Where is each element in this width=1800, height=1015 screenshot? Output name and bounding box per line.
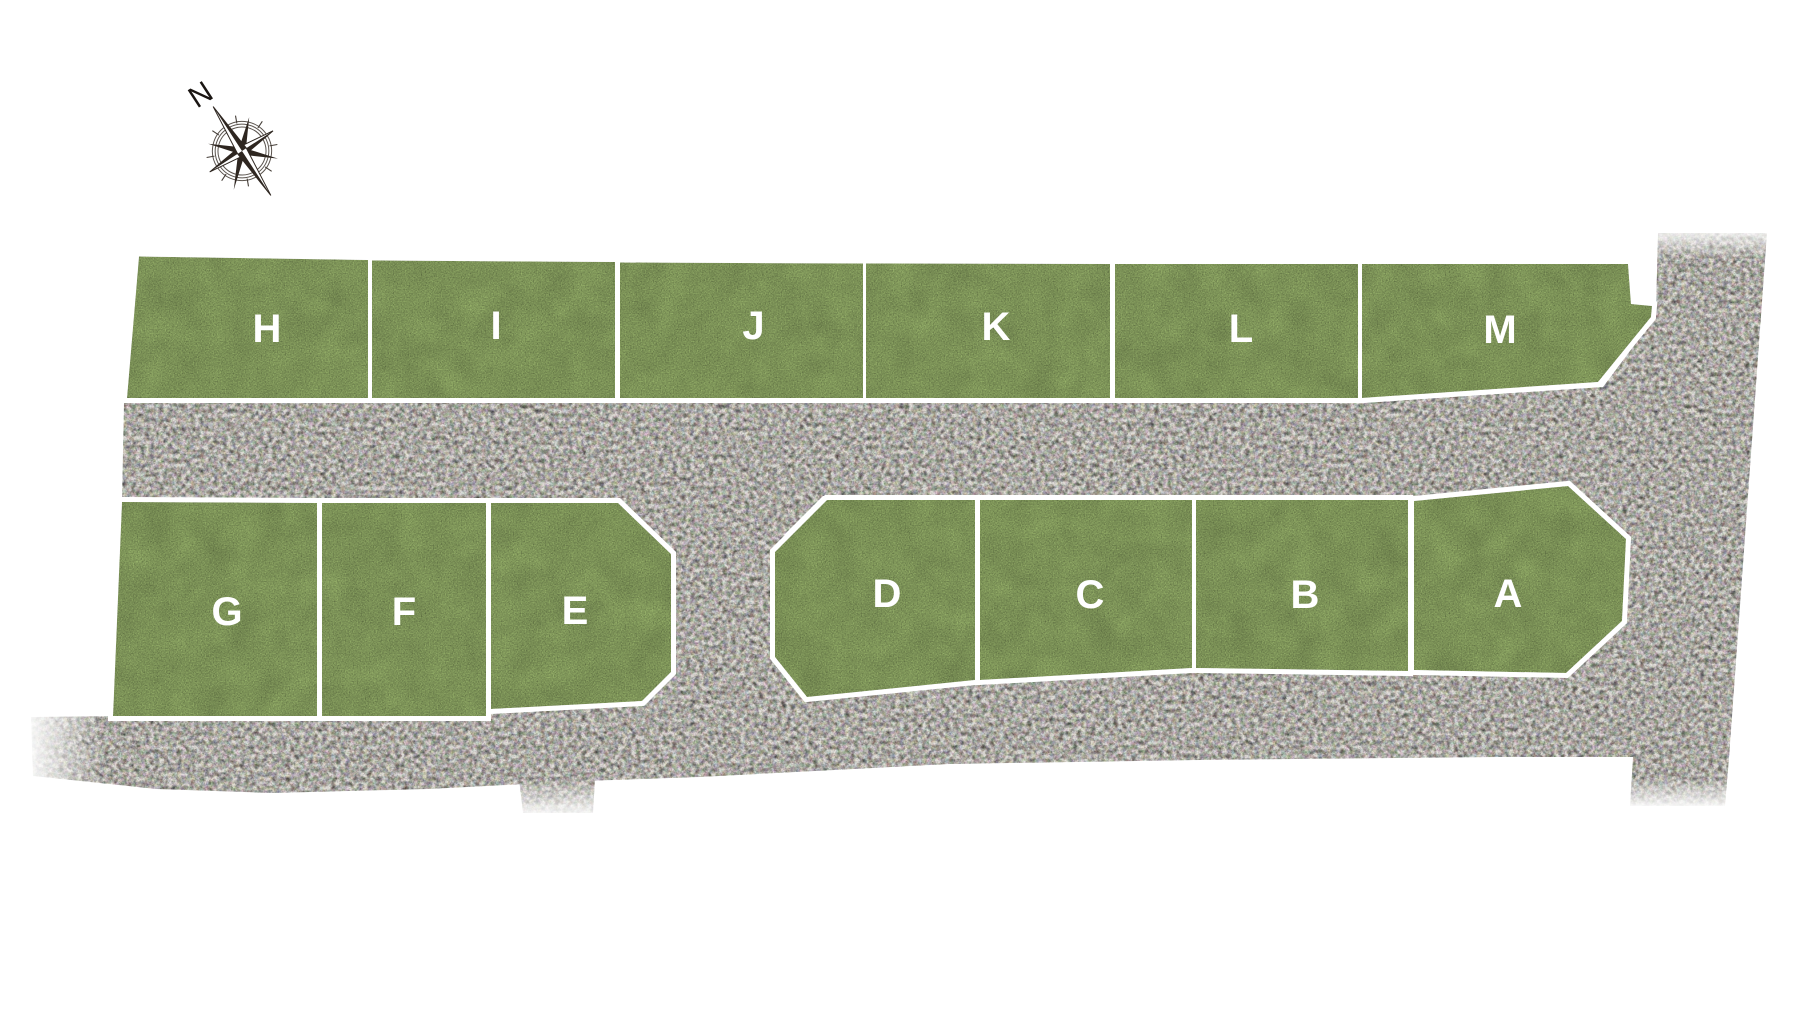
svg-text:B: B	[1291, 573, 1320, 617]
svg-text:F: F	[392, 590, 416, 634]
svg-text:E: E	[562, 589, 589, 633]
svg-text:I: I	[490, 304, 501, 348]
svg-text:H: H	[253, 307, 282, 351]
svg-text:C: C	[1076, 573, 1105, 617]
svg-text:M: M	[1483, 308, 1516, 352]
svg-text:L: L	[1229, 307, 1253, 351]
svg-text:A: A	[1494, 572, 1523, 616]
svg-text:K: K	[982, 305, 1011, 349]
svg-text:G: G	[211, 590, 242, 634]
svg-text:D: D	[873, 572, 902, 616]
svg-text:J: J	[742, 304, 764, 348]
